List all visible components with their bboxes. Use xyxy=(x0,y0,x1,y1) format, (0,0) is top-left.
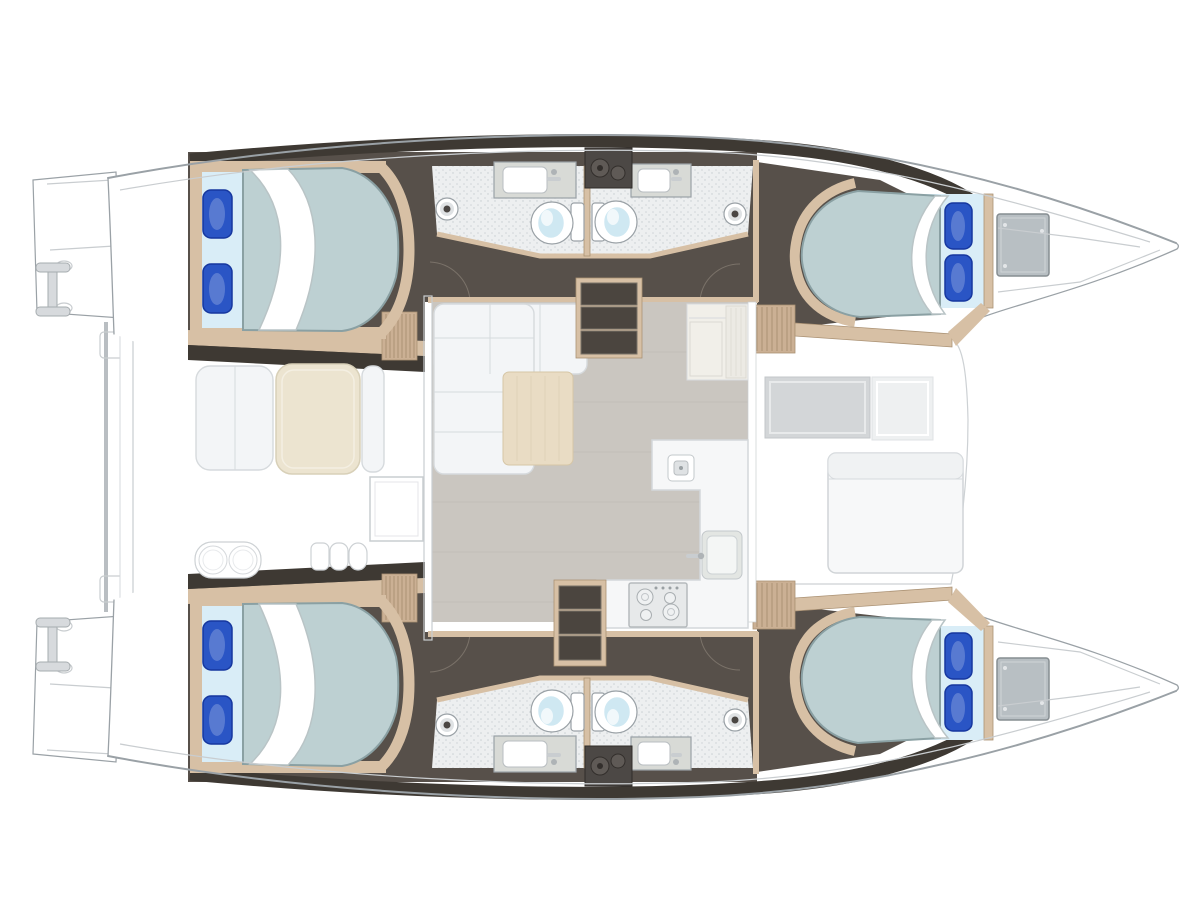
companionway-steps-port xyxy=(576,278,642,358)
cockpit-stowage-box xyxy=(370,477,423,541)
foredeck-lounge-bench xyxy=(828,453,963,573)
stove xyxy=(629,583,687,627)
pillow xyxy=(945,203,972,249)
swim-platform xyxy=(33,172,121,318)
faucet-icon xyxy=(673,169,679,175)
equipment-block xyxy=(585,148,632,188)
lounge-pad xyxy=(503,372,573,465)
catamaran-floorplan xyxy=(0,0,1200,900)
shower-drain-icon xyxy=(436,198,458,220)
floorplan-svg xyxy=(0,0,1200,900)
saloon xyxy=(424,278,756,666)
double-stool-seat xyxy=(195,542,261,578)
louver-locker-bow xyxy=(753,305,795,353)
mattress xyxy=(243,168,398,331)
transom-platform xyxy=(33,172,121,318)
shower-drain-icon xyxy=(724,203,746,225)
headboard xyxy=(190,161,204,339)
toilet xyxy=(592,201,637,243)
pillow xyxy=(945,255,972,301)
foredeck-footwell xyxy=(765,377,870,438)
washbasin xyxy=(494,162,576,198)
pillow xyxy=(203,264,232,313)
foredeck-footwell-light xyxy=(872,377,933,440)
toilet xyxy=(531,202,584,244)
anchor-locker-hatch xyxy=(997,214,1049,276)
aft-cabin-berth xyxy=(190,161,409,339)
storage-cabinet xyxy=(687,304,748,380)
pillow xyxy=(203,190,232,238)
cockpit-side-bench xyxy=(362,366,384,472)
faucet-icon xyxy=(551,169,557,175)
berth-frame-end xyxy=(984,194,993,308)
companionway-steps-starboard xyxy=(554,580,606,666)
prep-sink xyxy=(668,455,694,481)
forward-window-wall xyxy=(748,302,756,622)
washbasin xyxy=(631,164,691,197)
cockpit-table xyxy=(276,364,360,474)
cockpit-fan-steps xyxy=(311,543,367,570)
bow-bulkhead xyxy=(753,160,759,302)
davit-beam xyxy=(104,322,108,612)
bench-backrest xyxy=(828,453,963,479)
